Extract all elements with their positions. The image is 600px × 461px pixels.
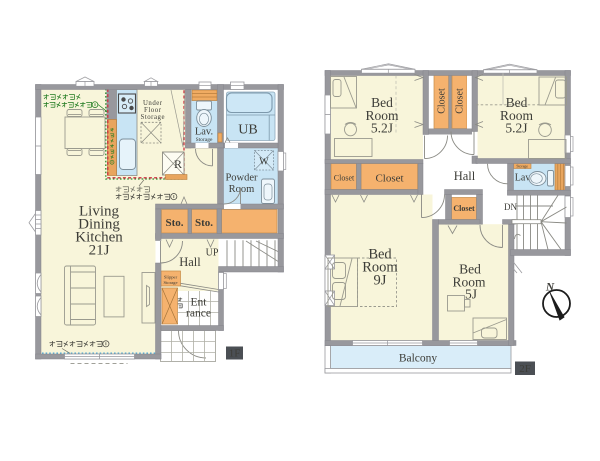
svg-text:Storage: Storage [196, 137, 213, 143]
svg-text:Storage: Storage [516, 165, 528, 169]
svg-text:rance: rance [186, 308, 211, 320]
svg-text:UP: UP [206, 248, 219, 259]
svg-text:Room: Room [229, 184, 255, 195]
svg-text:1F: 1F [229, 348, 241, 360]
svg-text:Closet: Closet [334, 174, 355, 183]
svg-text:Closet: Closet [375, 173, 403, 185]
svg-text:Powder: Powder [225, 173, 258, 184]
svg-text:W: W [259, 157, 269, 168]
svg-text:DN: DN [504, 202, 517, 212]
svg-text:N: N [545, 282, 555, 294]
svg-text:UB: UB [238, 122, 257, 137]
svg-text:Storage: Storage [141, 114, 165, 121]
svg-text:Slipper: Slipper [164, 275, 178, 280]
svg-text:Floor: Floor [144, 107, 162, 114]
svg-text:5J: 5J [465, 287, 477, 302]
svg-text:Hall: Hall [454, 169, 476, 183]
svg-text:5.2J: 5.2J [371, 121, 393, 136]
svg-text:Lav.: Lav. [195, 127, 213, 138]
svg-text:9J: 9J [374, 273, 387, 289]
svg-text:Sto.: Sto. [195, 217, 213, 229]
svg-text:Under: Under [143, 100, 163, 107]
svg-text:Storage: Storage [163, 280, 177, 285]
svg-text:Sto.: Sto. [165, 217, 183, 229]
svg-text:R: R [174, 157, 182, 171]
svg-text:Closet: Closet [453, 204, 475, 213]
svg-text:21J: 21J [89, 243, 110, 259]
svg-text:Closet: Closet [437, 88, 448, 114]
svg-text:2F: 2F [519, 363, 531, 375]
svg-text:Hall: Hall [179, 255, 201, 269]
svg-text:Balcony: Balcony [399, 353, 438, 365]
svg-text:5.2J: 5.2J [505, 121, 527, 136]
svg-text:Closet: Closet [455, 88, 466, 114]
